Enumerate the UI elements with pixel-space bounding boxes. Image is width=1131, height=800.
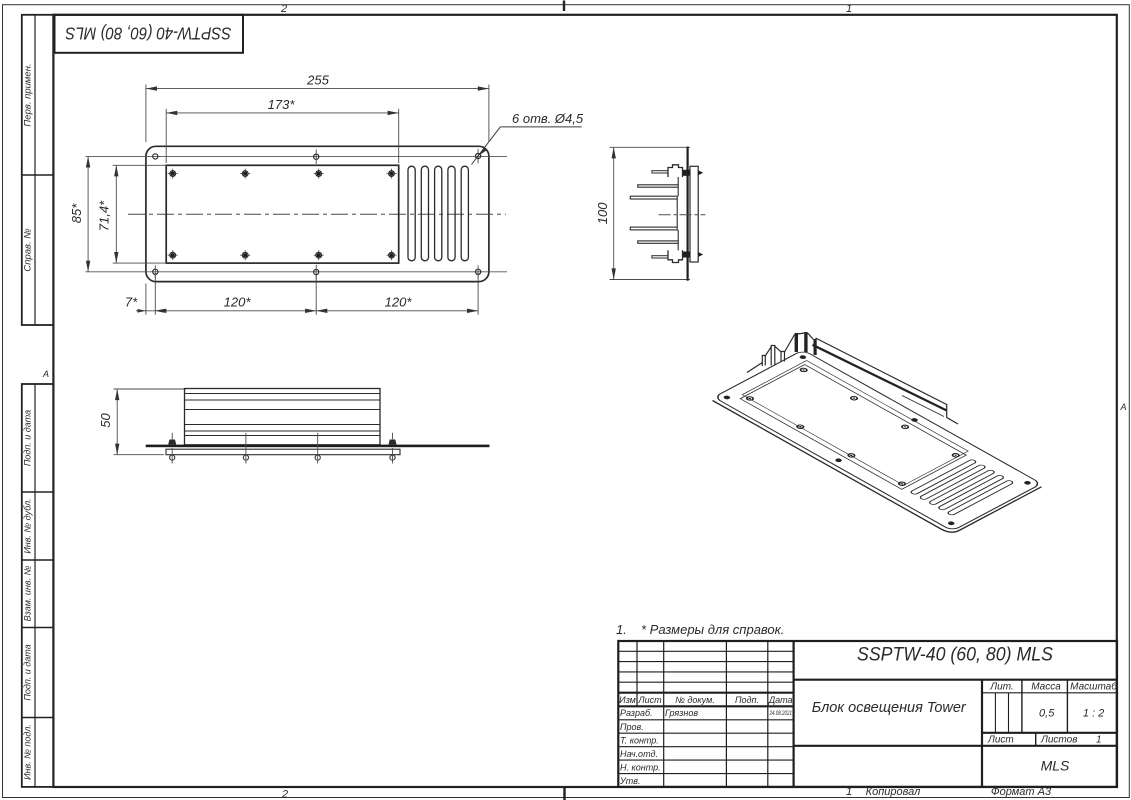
svg-text:1.: 1. — [616, 622, 627, 637]
svg-text:Подп. и дата: Подп. и дата — [23, 644, 33, 700]
svg-text:Н. контр.: Н. контр. — [620, 763, 661, 773]
svg-text:Дата: Дата — [768, 695, 793, 705]
svg-text:А: А — [42, 369, 49, 379]
svg-text:MLS: MLS — [1041, 758, 1070, 774]
svg-text:Утв.: Утв. — [619, 776, 640, 786]
svg-text:Листов: Листов — [1040, 735, 1077, 746]
svg-text:1: 1 — [1096, 735, 1102, 746]
svg-text:7*: 7* — [125, 294, 138, 309]
svg-text:1: 1 — [846, 3, 852, 15]
svg-text:Лист: Лист — [987, 735, 1014, 746]
svg-text:50: 50 — [98, 413, 113, 428]
svg-text:Лист: Лист — [637, 695, 662, 705]
svg-text:Подп. и дата: Подп. и дата — [23, 410, 33, 466]
svg-text:* Размеры для справок.: * Размеры для справок. — [641, 622, 784, 637]
svg-text:0,5: 0,5 — [1039, 708, 1055, 720]
svg-text:Нач.отд.: Нач.отд. — [620, 749, 658, 759]
svg-text:Пров.: Пров. — [620, 722, 644, 732]
svg-text:Масса: Масса — [1031, 682, 1061, 693]
svg-text:24.08.2021: 24.08.2021 — [769, 711, 792, 717]
svg-text:SSPTW-40 (60, 80) MLS: SSPTW-40 (60, 80) MLS — [65, 24, 231, 44]
svg-text:Инв. № подл.: Инв. № подл. — [23, 724, 33, 780]
svg-text:Лит.: Лит. — [989, 682, 1013, 693]
svg-text:Блок освещения Tower: Блок освещения Tower — [812, 699, 967, 716]
svg-text:85*: 85* — [69, 203, 84, 223]
svg-text:Грязнов: Грязнов — [665, 708, 698, 718]
svg-text:2: 2 — [280, 3, 287, 15]
svg-text:Взам. инв. №: Взам. инв. № — [23, 565, 33, 621]
svg-text:Т. контр.: Т. контр. — [620, 736, 659, 746]
svg-text:71,4*: 71,4* — [96, 200, 111, 231]
svg-text:Масштаб: Масштаб — [1070, 681, 1117, 693]
svg-text:1 : 2: 1 : 2 — [1083, 708, 1104, 720]
svg-text:Формат А3: Формат А3 — [991, 786, 1052, 798]
svg-text:Перв. примен.: Перв. примен. — [23, 63, 34, 126]
svg-text:№ докум.: № докум. — [675, 695, 715, 705]
svg-text:Разраб.: Разраб. — [620, 708, 653, 718]
svg-text:Копировал: Копировал — [866, 786, 921, 798]
svg-text:255: 255 — [306, 73, 329, 88]
svg-text:6 отв. Ø4,5: 6 отв. Ø4,5 — [512, 111, 584, 126]
svg-text:120*: 120* — [224, 294, 252, 309]
svg-text:Подп.: Подп. — [735, 695, 759, 705]
svg-text:1: 1 — [846, 786, 852, 798]
svg-text:2: 2 — [281, 789, 288, 800]
svg-text:А: А — [1119, 402, 1126, 412]
svg-text:100: 100 — [595, 202, 610, 224]
svg-text:120*: 120* — [385, 294, 413, 309]
svg-text:Справ. №: Справ. № — [23, 228, 34, 271]
svg-text:SSPTW-40 (60, 80) MLS: SSPTW-40 (60, 80) MLS — [857, 645, 1053, 666]
svg-text:Изм: Изм — [619, 695, 636, 705]
svg-text:Инв. № дубл.: Инв. № дубл. — [23, 498, 33, 553]
svg-text:173*: 173* — [268, 97, 296, 112]
